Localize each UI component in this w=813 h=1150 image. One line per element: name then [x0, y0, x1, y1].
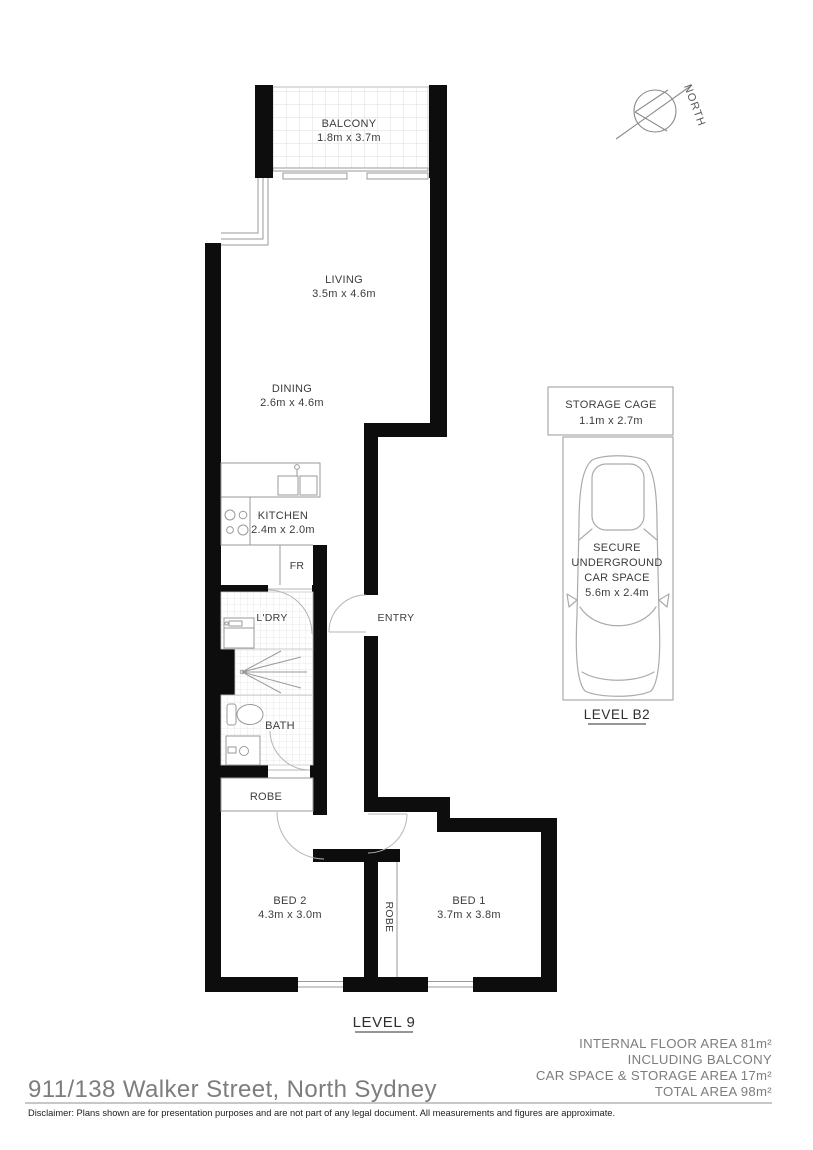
bed2-dims: 4.3m x 3.0m: [258, 909, 322, 921]
fridge-label: FR: [290, 560, 305, 572]
balcony: BALCONY 1.8m x 3.7m: [255, 87, 446, 179]
bed1-dims: 3.7m x 3.8m: [437, 909, 501, 921]
bed1-door-arc: [368, 814, 407, 853]
floor-plan-page: BALCONY 1.8m x 3.7m: [0, 0, 813, 1150]
area-total: TOTAL AREA 98m²: [655, 1084, 772, 1099]
entry: ENTRY: [329, 595, 414, 632]
kitchen: KITCHEN 2.4m x 2.0m FR: [221, 463, 320, 585]
levelb2-caption: LEVEL B2: [584, 707, 651, 724]
living-room: LIVING 3.5m x 4.6m: [312, 274, 376, 300]
bed2-robe-label: ROBE: [383, 902, 395, 933]
sliding-door: [273, 168, 428, 179]
living-dims: 3.5m x 4.6m: [312, 288, 376, 300]
kitchen-label: KITCHEN: [258, 510, 308, 522]
laundry-label: L'DRY: [256, 612, 287, 624]
carspace-dims: 5.6m x 2.4m: [585, 587, 649, 599]
bed2-label: BED 2: [273, 895, 306, 907]
car-space: SECURE UNDERGROUND CAR SPACE 5.6m x 2.4m: [563, 437, 673, 700]
balcony-label: BALCONY: [322, 118, 377, 130]
washing-machine-icon: [224, 618, 254, 648]
entry-door-arc: [329, 595, 366, 632]
compass-needle-icon: [616, 85, 692, 139]
address-title: 911/138 Walker Street, North Sydney: [28, 1076, 437, 1103]
levelb2-label: LEVEL B2: [584, 707, 651, 722]
kitchen-dims: 2.4m x 2.0m: [251, 524, 315, 536]
area-internal: INTERNAL FLOOR AREA 81m²: [579, 1036, 772, 1051]
dining-label: DINING: [272, 383, 312, 395]
level9-caption: LEVEL 9: [353, 1014, 416, 1032]
dining-area: DINING 2.6m x 4.6m: [260, 383, 324, 409]
storage-cage: STORAGE CAGE 1.1m x 2.7m: [548, 387, 673, 435]
living-label: LIVING: [325, 274, 363, 286]
laundry: L'DRY: [221, 589, 313, 649]
storage-dims: 1.1m x 2.7m: [579, 415, 643, 427]
dining-dims: 2.6m x 4.6m: [260, 397, 324, 409]
north-label: NORTH: [681, 83, 707, 128]
kitchen-sink-left: [278, 476, 298, 495]
footer: 911/138 Walker Street, North Sydney INTE…: [25, 1036, 772, 1118]
entry-label: ENTRY: [378, 612, 415, 624]
floor-plan-drawing: BALCONY 1.8m x 3.7m: [0, 0, 813, 1150]
carspace-line1: SECURE: [593, 542, 641, 554]
disclaimer-text: Disclaimer: Plans shown are for presenta…: [28, 1108, 615, 1118]
hall-robe: ROBE: [221, 778, 313, 811]
storage-label: STORAGE CAGE: [565, 399, 656, 411]
balcony-dims: 1.8m x 3.7m: [317, 132, 381, 144]
bed1-room: BED 1 3.7m x 3.8m: [437, 895, 501, 921]
kitchen-bench-side: [221, 497, 250, 545]
north-compass: NORTH: [616, 83, 707, 139]
robe-label: ROBE: [250, 791, 282, 803]
toilet-icon: [227, 704, 263, 725]
carspace-line3: CAR SPACE: [584, 572, 649, 584]
kitchen-sink-right: [300, 476, 317, 495]
bed2-robe-strip: ROBE: [383, 862, 397, 977]
bath-label: BATH: [265, 720, 295, 732]
area-including: INCLUDING BALCONY: [628, 1052, 772, 1067]
level9-label: LEVEL 9: [353, 1014, 416, 1031]
carspace-line2: UNDERGROUND: [571, 557, 662, 569]
bed2-room: BED 2 4.3m x 3.0m: [258, 895, 322, 921]
bed1-label: BED 1: [452, 895, 485, 907]
bathroom: BATH: [221, 649, 313, 770]
area-car-storage: CAR SPACE & STORAGE AREA 17m²: [536, 1068, 772, 1083]
vanity-icon: [226, 736, 260, 765]
corner-window: [221, 178, 268, 245]
